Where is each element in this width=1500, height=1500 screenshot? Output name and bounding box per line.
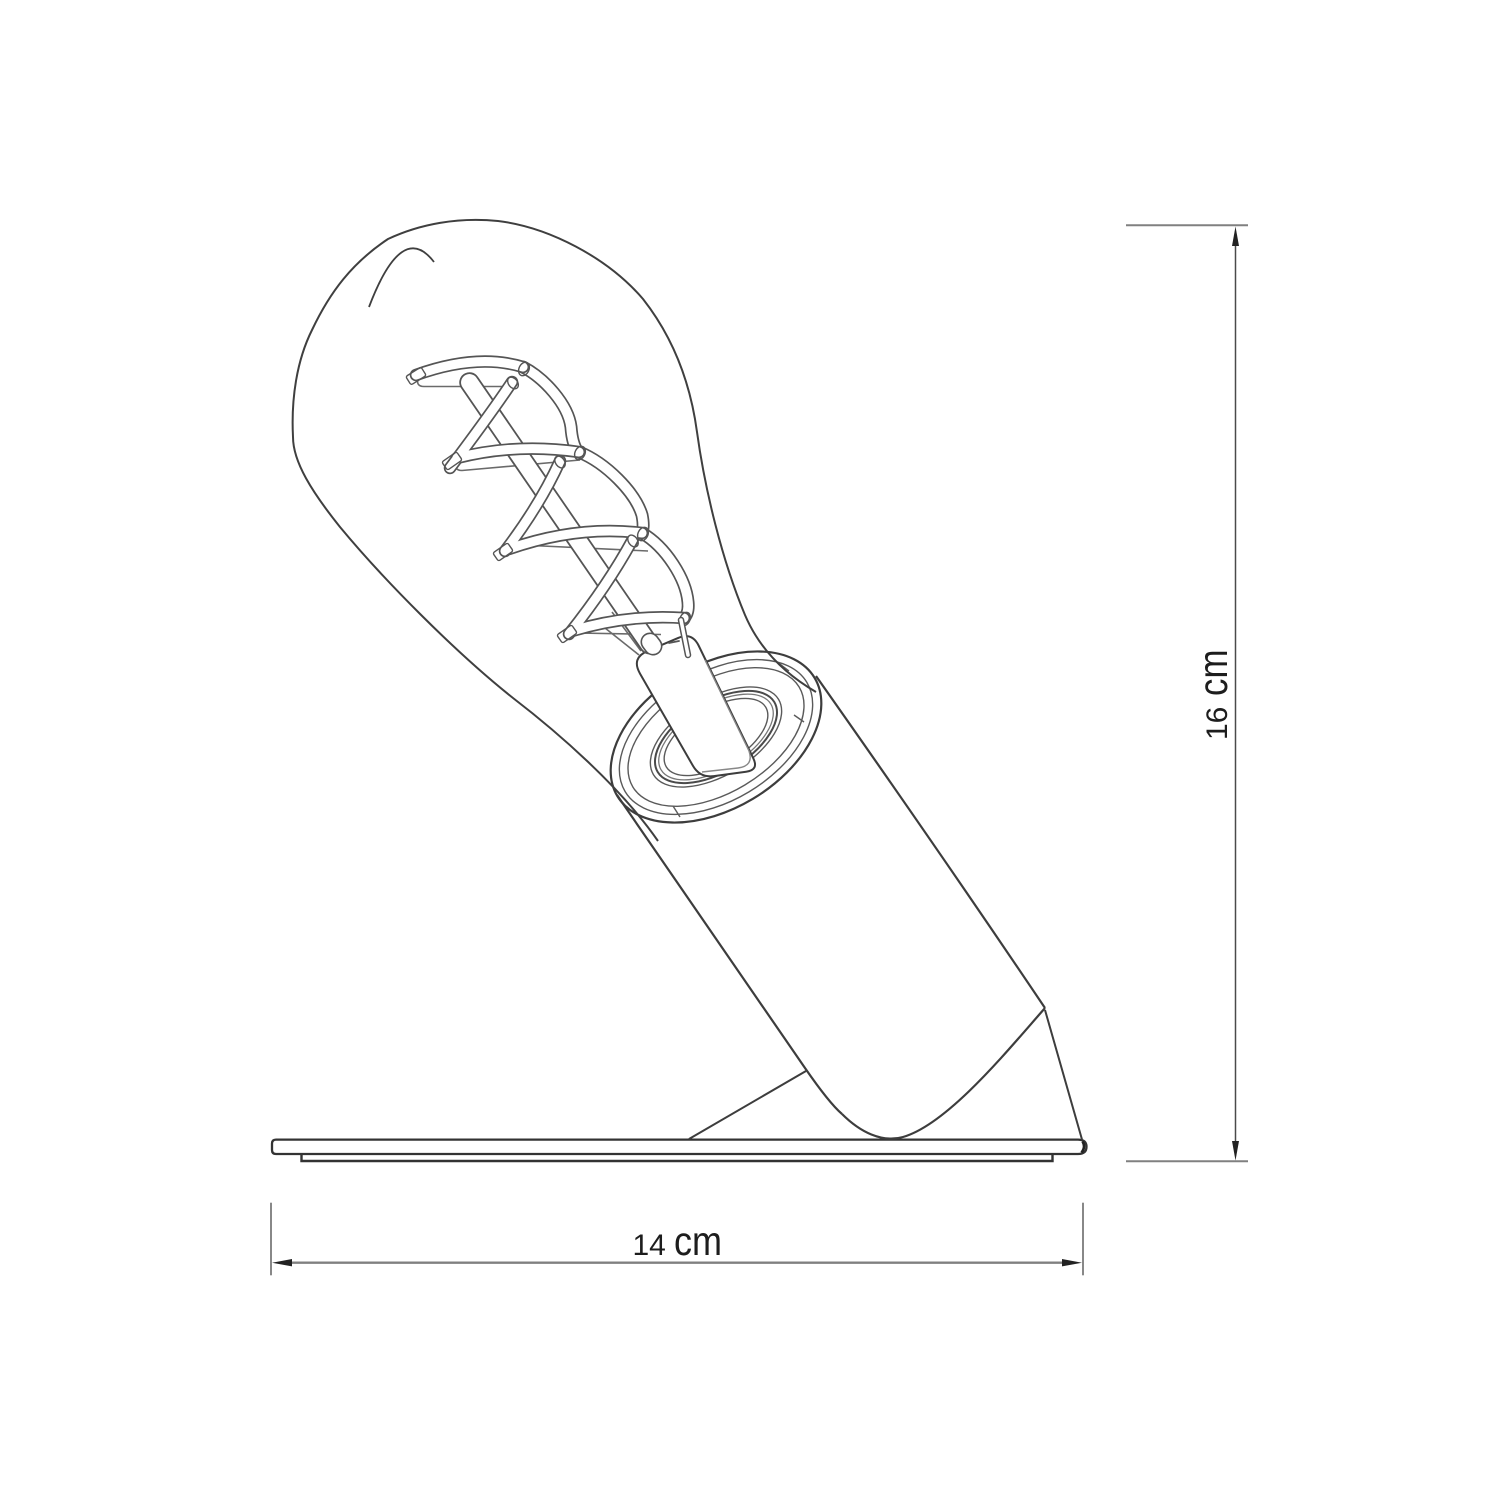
- svg-text:16: 16: [1201, 707, 1234, 740]
- svg-text:cm: cm: [674, 1218, 722, 1264]
- svg-text:cm: cm: [1190, 650, 1236, 697]
- svg-text:14: 14: [633, 1229, 666, 1262]
